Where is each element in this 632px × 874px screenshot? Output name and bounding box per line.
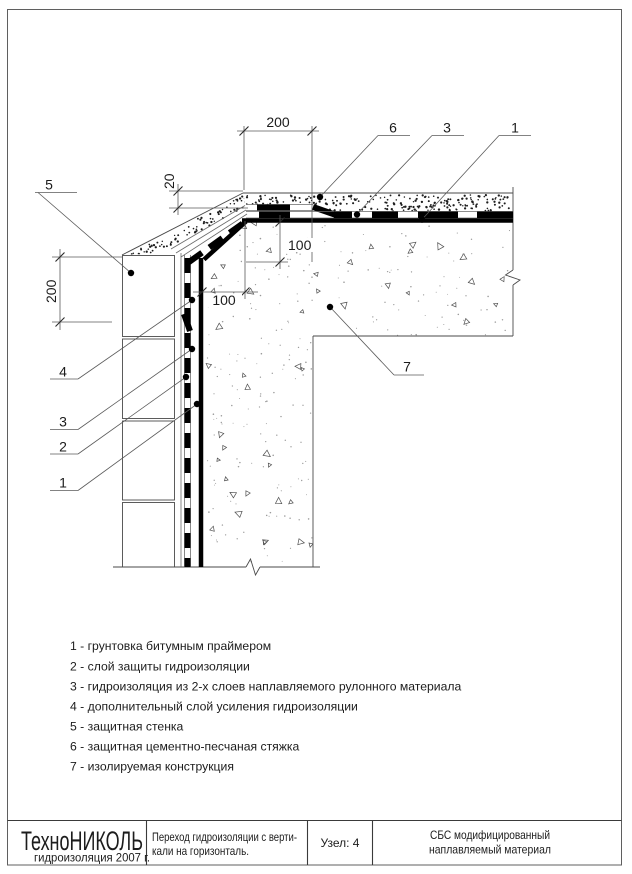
texture-dot bbox=[391, 208, 393, 210]
texture-dot bbox=[460, 204, 462, 206]
sheet-border bbox=[8, 10, 622, 866]
leader-dot bbox=[189, 346, 195, 352]
texture-dot bbox=[287, 276, 288, 277]
aggregate-triangle bbox=[211, 274, 218, 281]
leader-dot bbox=[194, 401, 200, 407]
texture-dot bbox=[448, 253, 449, 254]
texture-dot bbox=[332, 202, 334, 204]
texture-dot bbox=[264, 548, 265, 549]
texture-dot bbox=[384, 197, 385, 198]
callout-label: 3 bbox=[59, 414, 67, 430]
texture-dot bbox=[270, 199, 272, 201]
texture-dot bbox=[502, 247, 503, 248]
texture-dot bbox=[458, 314, 460, 316]
texture-dot bbox=[477, 199, 478, 200]
texture-dot bbox=[308, 283, 309, 284]
texture-dot bbox=[425, 206, 427, 208]
texture-dot bbox=[348, 195, 350, 197]
texture-dot bbox=[250, 303, 251, 304]
texture-dot bbox=[210, 221, 212, 223]
texture-dot bbox=[499, 206, 501, 208]
texture-dot bbox=[456, 288, 457, 289]
callout-label: 7 bbox=[403, 359, 411, 375]
aggregate-triangle bbox=[223, 477, 228, 482]
texture-dot bbox=[409, 198, 411, 200]
aggregate-triangle bbox=[314, 272, 320, 277]
texture-dot bbox=[418, 300, 419, 301]
texture-dot bbox=[411, 271, 412, 272]
texture-dot bbox=[443, 324, 444, 325]
texture-dot bbox=[440, 201, 442, 203]
detail-drawing-canvas: 200 20 200 100 100 5 bbox=[0, 0, 632, 874]
title-block-node-cell: Узел: 4 bbox=[321, 836, 360, 850]
texture-dot bbox=[298, 478, 299, 479]
texture-dot bbox=[305, 461, 306, 462]
texture-dot bbox=[275, 197, 277, 199]
texture-dot bbox=[462, 205, 463, 206]
texture-dot bbox=[373, 321, 374, 322]
texture-dot bbox=[475, 206, 477, 208]
texture-dot bbox=[235, 503, 236, 504]
texture-dot bbox=[219, 285, 220, 286]
wall-block bbox=[123, 339, 175, 419]
texture-dot bbox=[290, 195, 292, 197]
texture-dot bbox=[251, 308, 252, 309]
texture-dot bbox=[201, 228, 203, 230]
legend-item: 3 - гидроизоляция из 2-х слоев наплавляе… bbox=[70, 680, 461, 694]
texture-dot bbox=[325, 202, 327, 204]
membrane-dash bbox=[372, 212, 398, 219]
texture-dot bbox=[194, 231, 195, 232]
texture-dot bbox=[213, 393, 214, 394]
texture-dot bbox=[230, 501, 231, 502]
texture-dot bbox=[389, 246, 391, 248]
texture-dot bbox=[301, 480, 302, 481]
texture-dot bbox=[244, 197, 246, 199]
aggregate-triangle bbox=[241, 373, 246, 378]
texture-dot bbox=[343, 281, 345, 283]
texture-dot bbox=[425, 196, 427, 198]
texture-dot bbox=[142, 257, 144, 259]
material-line2: наплавляемый материал bbox=[429, 843, 551, 857]
texture-dot bbox=[193, 228, 195, 230]
texture-dot bbox=[260, 238, 262, 240]
texture-dot bbox=[413, 201, 414, 202]
brand-subtitle: гидроизоляция 2007 г. bbox=[34, 853, 150, 865]
texture-dot bbox=[466, 324, 467, 325]
texture-dot bbox=[422, 194, 424, 196]
texture-dot bbox=[411, 334, 412, 335]
texture-dot bbox=[286, 254, 287, 255]
texture-dot bbox=[480, 309, 481, 310]
texture-dot bbox=[281, 490, 282, 491]
texture-dot bbox=[126, 259, 128, 261]
texture-dot bbox=[367, 269, 369, 271]
texture-dot bbox=[384, 302, 385, 303]
texture-dot bbox=[414, 208, 416, 210]
texture-dot bbox=[148, 244, 150, 246]
texture-dot bbox=[236, 458, 237, 459]
texture-dot bbox=[298, 347, 299, 348]
wall-block bbox=[123, 503, 175, 568]
texture-dot bbox=[430, 204, 432, 206]
aggregate-triangle bbox=[464, 319, 471, 326]
aggregate-triangle bbox=[266, 248, 273, 255]
texture-dot bbox=[263, 466, 264, 467]
texture-dot bbox=[131, 262, 133, 264]
texture-dot bbox=[209, 344, 210, 345]
texture-dot bbox=[487, 296, 489, 298]
texture-dot bbox=[247, 246, 248, 247]
texture-dot bbox=[221, 423, 222, 424]
texture-dot bbox=[271, 197, 273, 199]
texture-dot bbox=[149, 246, 151, 248]
texture-dot bbox=[260, 197, 262, 199]
texture-dot bbox=[339, 203, 341, 205]
texture-dot bbox=[443, 202, 445, 204]
texture-dot bbox=[146, 251, 148, 253]
texture-dot bbox=[283, 364, 284, 365]
texture-dot bbox=[196, 226, 198, 228]
aggregate-triangle bbox=[243, 384, 250, 392]
texture-dot bbox=[384, 208, 386, 210]
texture-dot bbox=[401, 204, 403, 206]
leader-dot bbox=[189, 297, 195, 303]
texture-dot bbox=[138, 258, 140, 260]
texture-dot bbox=[322, 227, 323, 228]
texture-dot bbox=[302, 405, 303, 406]
detail-description-line1: Переход гидроизоляции с верти- bbox=[152, 830, 297, 844]
texture-dot bbox=[208, 334, 209, 335]
texture-dot bbox=[151, 245, 153, 247]
texture-dot bbox=[453, 260, 454, 261]
texture-dot bbox=[205, 222, 207, 224]
texture-dot bbox=[401, 233, 402, 234]
texture-dot bbox=[217, 541, 218, 542]
texture-dot bbox=[289, 518, 290, 519]
texture-dot bbox=[214, 434, 215, 435]
wall-block bbox=[123, 421, 175, 500]
texture-dot bbox=[455, 337, 457, 339]
texture-dot bbox=[284, 515, 286, 517]
texture-dot bbox=[220, 211, 222, 213]
aggregate-triangle bbox=[408, 249, 414, 255]
texture-dot bbox=[308, 479, 309, 480]
texture-dot bbox=[267, 555, 268, 556]
aggregate-triangle bbox=[263, 450, 271, 457]
texture-dot bbox=[237, 538, 238, 539]
texture-dot bbox=[227, 496, 228, 497]
texture-dot bbox=[288, 265, 290, 267]
texture-dot bbox=[133, 261, 135, 263]
texture-dot bbox=[260, 393, 261, 394]
texture-dot bbox=[504, 330, 505, 331]
texture-dot bbox=[214, 480, 215, 481]
texture-dot bbox=[397, 269, 398, 270]
texture-dot bbox=[297, 293, 298, 294]
texture-dot bbox=[162, 241, 163, 242]
texture-dot bbox=[443, 276, 444, 277]
title-block-brand-cell: ТехноНИКОЛЬ гидроизоляция 2007 г. bbox=[21, 826, 150, 865]
callout-7-structure: 7 bbox=[327, 304, 424, 375]
texture-dot bbox=[277, 487, 278, 488]
texture-dot bbox=[396, 199, 398, 201]
texture-dot bbox=[246, 196, 248, 198]
texture-dot bbox=[239, 462, 240, 463]
texture-dot bbox=[386, 208, 388, 210]
texture-dot bbox=[499, 199, 501, 201]
texture-dot bbox=[264, 195, 266, 197]
texture-dot bbox=[428, 200, 430, 202]
aggregate-triangle bbox=[216, 323, 224, 332]
texture-dot bbox=[138, 253, 140, 255]
texture-dot bbox=[252, 242, 253, 243]
texture-dot bbox=[285, 440, 286, 441]
texture-dot bbox=[282, 561, 283, 562]
texture-dot bbox=[447, 294, 448, 295]
texture-dot bbox=[438, 208, 440, 210]
texture-dot bbox=[446, 200, 448, 202]
texture-dot bbox=[410, 206, 412, 208]
texture-dot bbox=[507, 270, 508, 271]
texture-dot bbox=[265, 401, 266, 402]
texture-dot bbox=[241, 200, 243, 202]
texture-dot bbox=[403, 209, 405, 211]
texture-dot bbox=[311, 300, 312, 301]
texture-dot bbox=[354, 198, 356, 200]
texture-dot bbox=[471, 253, 472, 254]
dim-label: 100 bbox=[288, 237, 312, 253]
texture-dot bbox=[313, 202, 315, 204]
legend-item: 1 - грунтовка битумным праймером bbox=[70, 639, 271, 653]
dimension-wall-200: 200 bbox=[43, 249, 122, 330]
texture-dot bbox=[237, 389, 238, 390]
texture-dot bbox=[487, 208, 489, 210]
texture-dot bbox=[316, 203, 317, 204]
texture-dot bbox=[405, 235, 407, 237]
texture-dot bbox=[282, 369, 283, 370]
texture-dot bbox=[502, 198, 504, 200]
texture-dot bbox=[273, 226, 274, 227]
legend-item: 4 - дополнительный слой усиления гидроиз… bbox=[70, 700, 358, 714]
texture-dot bbox=[298, 519, 299, 520]
texture-dot bbox=[343, 199, 345, 201]
texture-dot bbox=[379, 268, 380, 269]
texture-dot bbox=[465, 197, 467, 199]
texture-dot bbox=[140, 259, 142, 261]
texture-dot bbox=[272, 455, 274, 457]
texture-dot bbox=[352, 252, 353, 253]
texture-dot bbox=[300, 202, 301, 203]
callout-label: 6 bbox=[389, 120, 397, 136]
aggregate-triangle bbox=[406, 290, 411, 295]
texture-dot bbox=[412, 206, 414, 208]
aggregate-triangle bbox=[494, 303, 498, 307]
texture-dot bbox=[255, 284, 256, 285]
texture-dot bbox=[269, 516, 270, 517]
wall-block bbox=[123, 256, 175, 337]
texture-dot bbox=[390, 194, 392, 196]
texture-dot bbox=[210, 218, 212, 220]
texture-dot bbox=[261, 353, 263, 355]
leader-dot bbox=[419, 216, 425, 222]
texture-dot bbox=[155, 246, 157, 248]
dim-label: 100 bbox=[212, 292, 236, 308]
texture-dot bbox=[314, 503, 315, 504]
texture-dot bbox=[398, 309, 399, 310]
texture-dot bbox=[393, 202, 395, 204]
texture-dot bbox=[325, 199, 327, 201]
texture-dot bbox=[310, 197, 312, 199]
texture-dot bbox=[485, 194, 487, 196]
texture-dot bbox=[307, 208, 309, 210]
texture-dot bbox=[170, 241, 172, 243]
texture-dot bbox=[297, 207, 299, 209]
texture-dot bbox=[307, 205, 309, 207]
texture-dot bbox=[287, 259, 288, 260]
callout-label: 4 bbox=[59, 364, 67, 380]
aggregate-triangle bbox=[408, 240, 416, 248]
texture-dot bbox=[380, 197, 382, 199]
texture-dot bbox=[444, 205, 446, 207]
leader-dot bbox=[327, 304, 333, 310]
texture-dot bbox=[216, 540, 217, 541]
texture-dot bbox=[351, 198, 352, 199]
callout-label: 1 bbox=[511, 120, 519, 136]
texture-dot bbox=[450, 206, 451, 207]
texture-dot bbox=[290, 446, 291, 447]
aggregate-triangle bbox=[341, 300, 350, 309]
texture-dot bbox=[377, 208, 379, 210]
dimension-screed-20: 20 bbox=[161, 173, 248, 215]
texture-dot bbox=[300, 442, 301, 443]
texture-dot bbox=[464, 254, 465, 255]
texture-dot bbox=[465, 295, 466, 296]
dim-label: 20 bbox=[161, 173, 177, 189]
texture-dot bbox=[153, 244, 155, 246]
texture-dot bbox=[401, 207, 403, 209]
texture-dot bbox=[213, 419, 214, 420]
callout-label: 3 bbox=[443, 120, 451, 136]
texture-dot bbox=[319, 201, 320, 202]
texture-dot bbox=[350, 195, 352, 197]
texture-dot bbox=[266, 423, 267, 424]
texture-dot bbox=[403, 206, 405, 208]
leader-dot bbox=[354, 211, 360, 217]
texture-dot bbox=[339, 265, 340, 266]
texture-dot bbox=[203, 222, 205, 224]
texture-dot bbox=[290, 548, 291, 549]
texture-dot bbox=[504, 202, 506, 204]
texture-dot bbox=[156, 242, 158, 244]
aggregate-triangle bbox=[209, 526, 214, 532]
aggregate-triangle bbox=[246, 491, 250, 496]
strip-step-down bbox=[313, 207, 336, 215]
texture-dot bbox=[260, 295, 262, 297]
texture-dot bbox=[247, 195, 248, 196]
texture-dot bbox=[233, 316, 234, 317]
texture-dot bbox=[214, 221, 215, 222]
texture-dot bbox=[246, 424, 247, 425]
texture-dot bbox=[196, 230, 198, 232]
texture-dot bbox=[407, 256, 408, 257]
dim-label: 200 bbox=[43, 279, 59, 303]
texture-dot bbox=[295, 378, 296, 379]
legend-item: 2 - слой защиты гидроизоляции bbox=[70, 660, 250, 674]
texture-dot bbox=[225, 534, 226, 535]
texture-dot bbox=[495, 197, 496, 198]
texture-dot bbox=[478, 195, 480, 197]
texture-dot bbox=[297, 206, 299, 208]
texture-dot bbox=[161, 244, 162, 245]
aggregate-triangle bbox=[268, 463, 271, 467]
texture-dot bbox=[222, 321, 224, 323]
aggregate-triangle bbox=[219, 431, 225, 438]
texture-dot bbox=[494, 204, 496, 206]
texture-dot bbox=[311, 276, 313, 278]
texture-dot bbox=[448, 329, 449, 330]
texture-dot bbox=[131, 262, 133, 264]
texture-dot bbox=[251, 463, 252, 464]
texture-dot bbox=[273, 267, 274, 268]
texture-dot bbox=[464, 195, 466, 197]
legend-item: 5 - защитная стенка bbox=[70, 720, 184, 734]
texture-dot bbox=[241, 261, 242, 262]
texture-dot bbox=[457, 199, 459, 201]
texture-dot bbox=[283, 201, 285, 203]
texture-dot bbox=[449, 209, 451, 211]
texture-dot bbox=[213, 508, 214, 509]
texture-dot bbox=[273, 392, 274, 393]
texture-dot bbox=[279, 303, 280, 304]
texture-dot bbox=[278, 484, 279, 485]
texture-dot bbox=[339, 297, 340, 298]
texture-dot bbox=[343, 196, 345, 198]
texture-dot bbox=[471, 200, 473, 202]
texture-dot bbox=[311, 537, 312, 538]
texture-dot bbox=[303, 374, 304, 375]
texture-dot bbox=[433, 208, 435, 210]
texture-dot bbox=[220, 369, 221, 370]
texture-dot bbox=[347, 270, 348, 271]
texture-dot bbox=[238, 466, 240, 468]
texture-dot bbox=[352, 202, 354, 204]
aggregate-triangle bbox=[223, 445, 227, 450]
texture-dot bbox=[324, 241, 325, 242]
texture-dot bbox=[313, 196, 315, 198]
texture-dot bbox=[446, 206, 448, 208]
texture-dot bbox=[268, 343, 269, 344]
texture-dot bbox=[276, 201, 278, 203]
texture-dot bbox=[214, 367, 215, 368]
aggregate-triangle bbox=[235, 511, 243, 518]
texture-dot bbox=[258, 199, 260, 201]
texture-dot bbox=[471, 239, 472, 240]
texture-dot bbox=[307, 349, 308, 350]
texture-dot bbox=[177, 234, 179, 236]
texture-dot bbox=[309, 206, 311, 208]
texture-dot bbox=[335, 204, 337, 206]
callout-2-protection-layer: 2 bbox=[50, 374, 189, 455]
texture-dot bbox=[437, 327, 438, 328]
texture-dot bbox=[398, 194, 400, 196]
texture-dot bbox=[249, 318, 251, 320]
texture-dot bbox=[130, 259, 132, 261]
texture-dot bbox=[464, 207, 466, 209]
texture-dot bbox=[148, 248, 150, 250]
texture-dot bbox=[334, 209, 336, 211]
texture-dot bbox=[309, 201, 311, 203]
